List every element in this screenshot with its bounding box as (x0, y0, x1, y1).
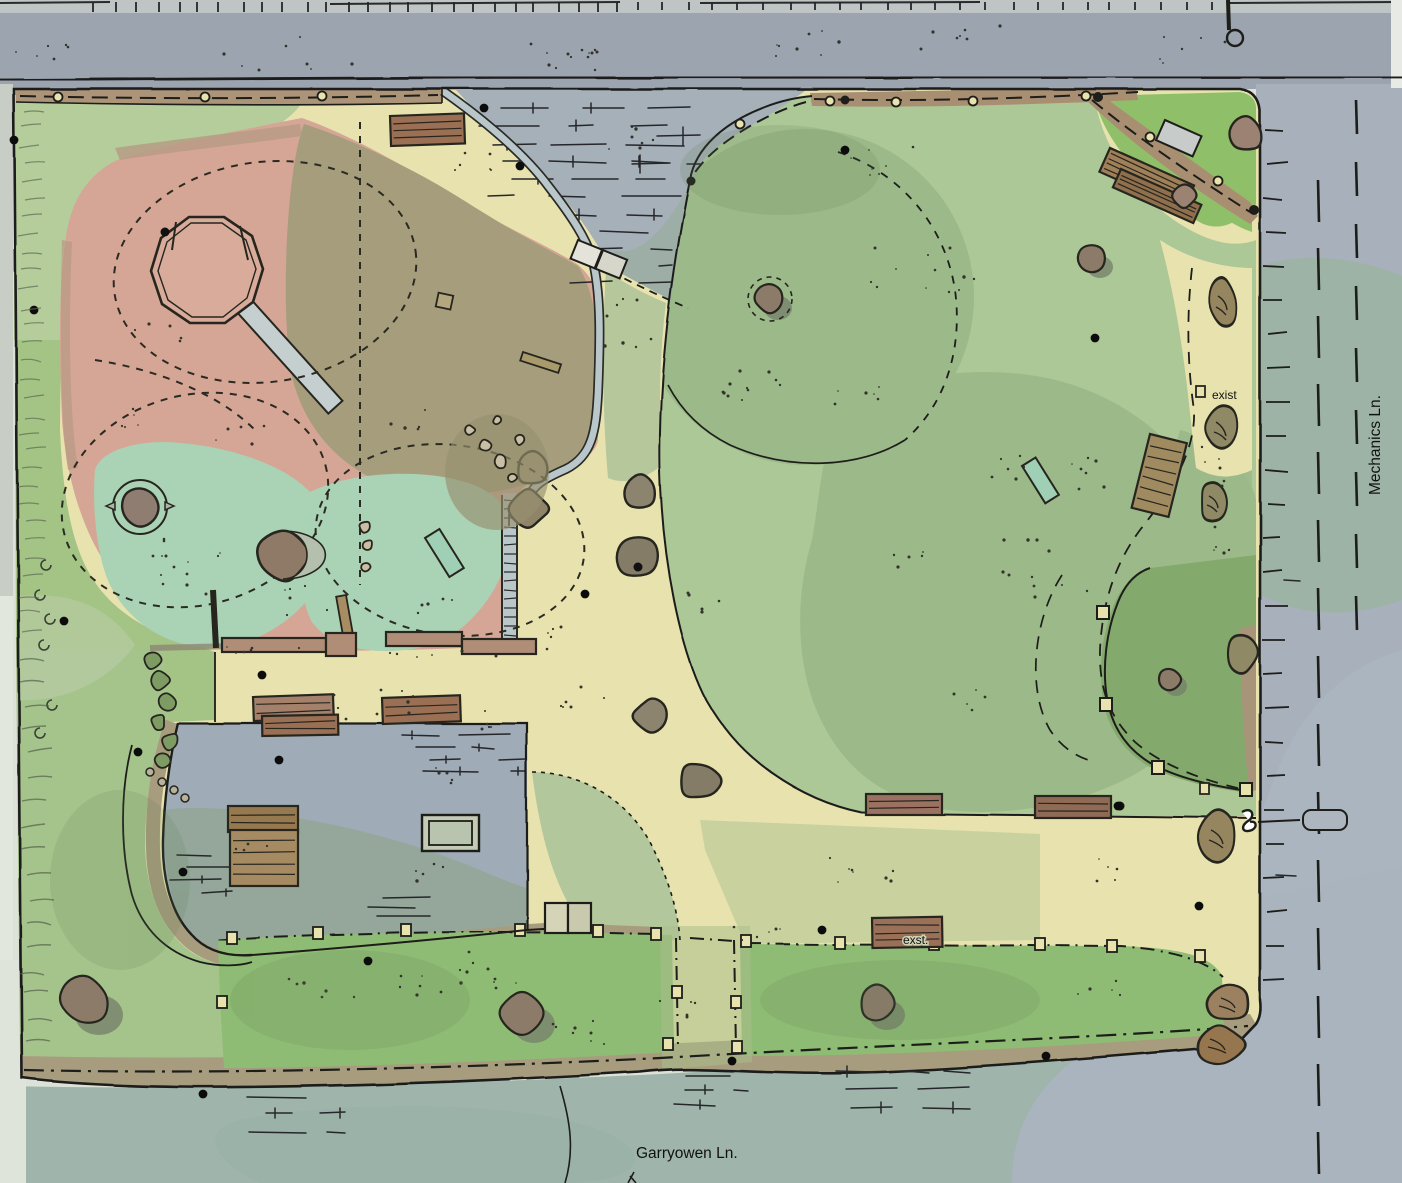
svg-text:Garryowen Ln.: Garryowen Ln. (636, 1145, 738, 1162)
svg-text:Mechanics Ln.: Mechanics Ln. (1367, 395, 1384, 495)
svg-text:exist: exist (1212, 388, 1237, 402)
svg-text:exst.: exst. (903, 933, 928, 947)
